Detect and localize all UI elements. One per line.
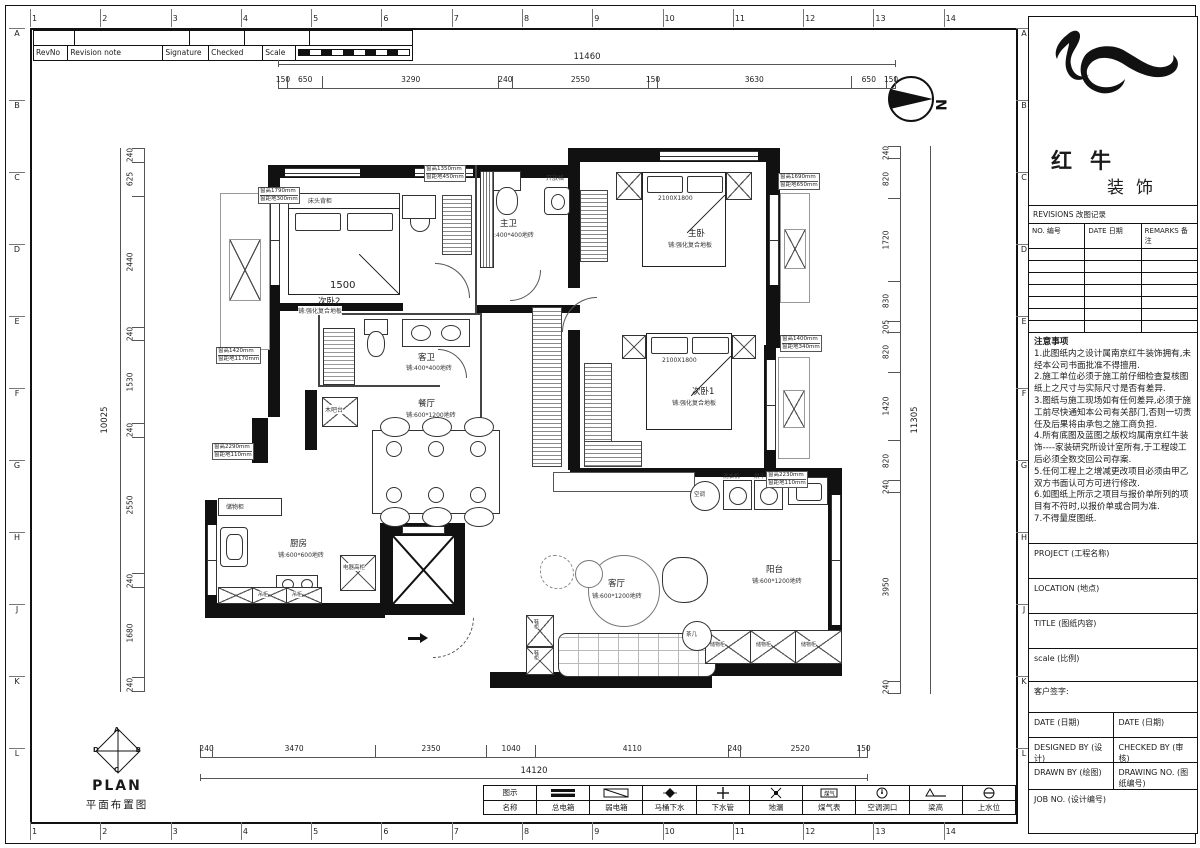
dimension-segment: 625 (132, 162, 144, 196)
grid-label: 1 (30, 9, 100, 27)
grid-label: 12 (803, 9, 873, 27)
dimension-segment: 650 (287, 76, 322, 88)
project-field: PROJECT (工程名称) (1029, 544, 1197, 579)
window-tag: 窗高1690mm窗距地650mm (778, 173, 820, 190)
entry-arrow-icon (408, 633, 428, 643)
floor-label-masterbath: 铺:400*400地砖 (488, 230, 534, 239)
window-tag: 窗高1790mm窗距地300mm (258, 187, 300, 204)
dimension-segment: 4110 (535, 745, 728, 757)
diamond-letter: A (114, 726, 119, 734)
revisions-empty-row (1029, 321, 1197, 332)
diamond-letter: C (114, 766, 119, 774)
appliance-cabinet (340, 555, 376, 591)
window-tag: 窗高2230mm窗距地110mm (766, 471, 808, 488)
grid-label: G (9, 460, 25, 532)
partition (318, 313, 320, 387)
grid-label: 13 (873, 822, 943, 840)
grid-label: E (9, 316, 25, 388)
grid-label: 6 (381, 822, 451, 840)
grid-label: 14 (944, 9, 1014, 27)
diamond-letter: B (136, 746, 141, 754)
dimension-segment: 205 (888, 321, 900, 332)
wood-bar-label: 木吧台 (325, 405, 343, 414)
revisions-empty-row (1029, 261, 1197, 273)
elevator-car (392, 535, 455, 605)
door-arc (435, 263, 470, 298)
grid-label: C (9, 172, 25, 244)
tea-table-label: 茶几 (686, 630, 697, 638)
place-setting (428, 487, 444, 503)
revisions-empty-row (1029, 285, 1197, 297)
place-setting (428, 441, 444, 457)
grid-label: 2 (100, 9, 170, 27)
legend-label: 煤气表 (803, 801, 855, 815)
wall (568, 330, 580, 470)
elevator-x (393, 536, 454, 604)
orientation-diamond: A D B C (95, 728, 139, 772)
dim-chain-right: 240820172083020582014208202403950240 (888, 146, 901, 694)
room-label-dining: 餐厅 (418, 397, 435, 409)
dim-chain-left: 2406252440240153024025502401680240 (132, 148, 145, 692)
place-setting (470, 441, 486, 457)
grid-label: 7 (452, 9, 522, 27)
armchair (662, 557, 708, 603)
date-right-field: DATE (日期) (1114, 713, 1198, 737)
grid-label: K (9, 676, 25, 748)
nightstand (622, 335, 646, 359)
date-left-field: DATE (日期) (1029, 713, 1114, 737)
dimension-segment: 820 (888, 440, 900, 480)
svg-text:煤气: 煤气 (824, 789, 835, 797)
grid-columns-bottom: 1234567891011121314 (30, 822, 1014, 840)
legend-name-header: 名称 (484, 801, 536, 815)
note-item: 1.此图纸内之设计属南京红牛装饰拥有,未经本公司书面批准不得擅用. (1034, 349, 1192, 373)
plan-subtitle: 平面布置图 (72, 797, 162, 812)
dimension-segment: 1530 (132, 340, 144, 422)
wall (305, 390, 317, 450)
legend-label: 总电箱 (537, 801, 589, 815)
bathroom-sink (544, 187, 570, 215)
water-supply-icon (983, 787, 995, 799)
dimension-segment: 650 (851, 76, 886, 88)
shoe-cabinet-label: 鞋柜 (533, 650, 540, 660)
window (831, 495, 841, 625)
washer (723, 480, 752, 510)
grid-label: 5 (311, 9, 381, 27)
grid-label: J (9, 604, 25, 676)
window (766, 360, 776, 450)
dimension-segment: 240 (132, 148, 144, 162)
dimension-segment: 830 (888, 281, 900, 321)
grid-label: 13 (873, 9, 943, 27)
job-no-field: JOB NO. (设计编号) (1029, 790, 1197, 822)
location-field: LOCATION (地点) (1029, 579, 1197, 614)
legend-label: 上水位 (963, 801, 1015, 815)
kitchen-sink (220, 527, 248, 567)
chair (464, 507, 494, 527)
dimension-segment: 3630 (657, 76, 851, 88)
dim-total-right: 11305 (918, 146, 931, 694)
dimension-segment: 1420 (888, 372, 900, 440)
wardrobe (580, 190, 608, 262)
title-field: TITLE (图纸内容) (1029, 614, 1197, 649)
grid-label: 1 (30, 822, 100, 840)
note-item: 7.不得量度图纸. (1034, 514, 1192, 526)
window (285, 168, 360, 177)
grid-label: 10 (663, 822, 733, 840)
dim-chain-bottom: 24034702350104041102402520150 (200, 745, 868, 758)
brand-block: 红牛 装饰 (1029, 17, 1197, 206)
grid-label: F (9, 388, 25, 460)
window (660, 151, 758, 161)
dimension-segment: 1040 (486, 745, 536, 757)
partition (320, 385, 440, 387)
grid-label: D (9, 244, 25, 316)
shower (323, 328, 355, 385)
dimension-segment: 240 (498, 76, 512, 88)
floor-drain-icon (770, 787, 782, 799)
note-item: 3.图纸与施工现场如有任何差异,必须于施工前尽快通知本公司有关部门,否则一切责任… (1034, 396, 1192, 431)
toilet-bowl (367, 331, 385, 357)
window-tag: 窗高1400mm窗距地340mm (780, 335, 822, 352)
grid-label: 7 (452, 822, 522, 840)
dim-chain-top: 150650329024025501503630650150 (278, 76, 896, 89)
grid-label: 8 (522, 9, 592, 27)
plan-title: PLAN (72, 778, 162, 794)
grid-label: 11 (733, 822, 803, 840)
shoe-cabinet-label: 鞋柜 (533, 619, 540, 629)
bed-size-bedroom1: 2100X1800 (662, 357, 697, 364)
grid-label: 5 (311, 822, 381, 840)
room-label-masterbath: 主卫 (500, 217, 517, 229)
bay-window (780, 193, 810, 303)
revisions-empty-row (1029, 297, 1197, 309)
wall (205, 603, 385, 618)
room-label-bedroom1: 次卧1 (692, 385, 714, 397)
designed-by-field: DESIGNED BY (设计) (1029, 738, 1114, 762)
grid-label: 9 (592, 822, 662, 840)
side-table (575, 560, 603, 588)
chair (464, 417, 494, 437)
desk (402, 195, 436, 219)
dimension-segment: 240 (132, 677, 144, 692)
brand-name-line1: 红牛 (1051, 145, 1129, 175)
wardrobe (584, 363, 612, 445)
place-setting (386, 487, 402, 503)
floor-plan: 床头背柜 次卧2 铺:强化复合地板 1500 开放格 主卫 铺:400*400地… (180, 135, 920, 710)
revisions-col-header: NO. 编号 (1029, 224, 1085, 248)
revisions-empty-row (1029, 249, 1197, 261)
bed-size-master: 2100X1800 (658, 195, 693, 202)
nightstand (732, 335, 756, 359)
plan-title-block: A D B C PLAN 平面布置图 (72, 728, 162, 812)
weak-current-box-icon (603, 788, 629, 798)
storage-cabinet-label: 储物柜 (226, 502, 244, 511)
diamond-letter: D (93, 746, 99, 754)
legend-label: 地漏 (750, 801, 802, 815)
grid-label: H (9, 532, 25, 604)
revisions-header: REVISIONS 改图记录 (1029, 206, 1197, 224)
dimension-segment: 820 (888, 158, 900, 198)
washer-label: 洗衣机 (723, 472, 740, 480)
entry-door-arc (433, 617, 474, 658)
wall (475, 305, 580, 313)
room-label-balcony: 阳台 (766, 563, 783, 575)
chair (380, 507, 410, 527)
floor-label-kitchen: 铺:600*600地砖 (278, 550, 324, 559)
revisions-empty-row (1029, 309, 1197, 321)
dimension-segment: 240 (132, 327, 144, 341)
legend-label: 下水管 (697, 801, 749, 815)
room-label-guestbath: 客卫 (418, 351, 435, 363)
bed-master (642, 172, 726, 267)
ac-platform (553, 472, 695, 492)
bed-bedroom1 (646, 333, 732, 430)
grid-label: 12 (803, 822, 873, 840)
dimension-segment: 2550 (132, 437, 144, 574)
grid-label: 3 (171, 9, 241, 27)
grid-columns-top: 1234567891011121314 (30, 9, 1014, 27)
note-item: 5.任何工程上之增减更改项目必须由甲乙双方书面认可方可进行修改. (1034, 467, 1192, 491)
shoe-cabinet (526, 647, 554, 675)
grid-rows-left: ABCDEFGHJKL (9, 28, 25, 820)
grid-label: 10 (663, 9, 733, 27)
dimension-segment: 240 (888, 681, 900, 694)
dimension-segment: 3470 (212, 745, 375, 757)
legend-icon-header: 图示 (484, 786, 536, 801)
dim-total-bottom: 14120 (200, 766, 868, 779)
scale-field: scale (比例) (1029, 649, 1197, 682)
window-tag: 窗高2290mm窗距地110mm (212, 443, 254, 460)
signature-header: Signature (163, 46, 209, 61)
nightstand (616, 172, 642, 200)
dimension-segment: 240 (888, 146, 900, 158)
revisions-col-header: DATE 日期 (1085, 224, 1141, 248)
grid-label: 9 (592, 9, 662, 27)
grid-label: 11 (733, 9, 803, 27)
dimension-segment: 150 (648, 76, 657, 88)
chair (380, 417, 410, 437)
dimension-segment: 150 (859, 745, 868, 757)
bedside-cabinet-label: 床头背柜 (308, 196, 332, 205)
place-setting (386, 441, 402, 457)
title-panel: 红牛 装饰 REVISIONS 改图记录 NO. 编号DATE 日期REMARK… (1028, 16, 1198, 834)
revisions-empty-row (1029, 273, 1197, 285)
dimension-segment: 240 (728, 745, 740, 757)
legend-bar: 图示 名称 总电箱 弱电箱 马桶下水 下水管 地漏 煤气煤气表 空调洞口 梁高 … (483, 785, 1016, 815)
grid-label: 4 (241, 822, 311, 840)
storage-cabinet-label: 储物柜 (710, 641, 725, 648)
legend-label: 弱电箱 (590, 801, 642, 815)
checked-header: Checked (209, 46, 263, 61)
hall-cabinet (532, 307, 562, 467)
window (270, 195, 280, 285)
dimension-segment: 2350 (375, 745, 486, 757)
place-setting (470, 487, 486, 503)
toilet-bowl (496, 187, 518, 215)
note-item: 4.所有底图及蓝图之版权均属南京红牛装饰----家装研究所设计室所有,于工程竣工… (1034, 431, 1192, 466)
dimension-segment: 150 (886, 76, 896, 88)
revno-header: RevNo (34, 46, 68, 61)
gas-meter-icon: 煤气 (820, 788, 838, 798)
room-label-kitchen: 厨房 (290, 537, 307, 549)
open-shelf-label: 开放格 (546, 173, 564, 182)
floor-label-master: 铺:强化复合地板 (668, 240, 712, 249)
room-label-master: 主卧 (688, 227, 705, 239)
legend-label: 马桶下水 (643, 801, 695, 815)
grid-label: A (9, 28, 25, 100)
desk-chair (410, 219, 430, 232)
notes-block: 注意事项 1.此图纸内之设计属南京红牛装饰拥有,未经本公司书面批准不得擅用.2.… (1029, 333, 1197, 544)
dim-1500: 1500 (330, 280, 355, 291)
dimension-segment: 1720 (888, 198, 900, 281)
notes-title: 注意事项 (1034, 337, 1192, 349)
toilet-drain-icon (663, 787, 677, 799)
dimension-segment: 1680 (132, 587, 144, 677)
grid-label: L (9, 748, 25, 820)
drawn-by-field: DRAWN BY (绘图) (1029, 763, 1114, 789)
grid-label: 2 (100, 822, 170, 840)
grid-label: B (9, 100, 25, 172)
partition (320, 313, 482, 315)
wardrobe (442, 195, 472, 255)
grid-label: 6 (381, 9, 451, 27)
dimension-segment: 3950 (888, 492, 900, 680)
window-tag: 窗高1420mm窗距地1170mm (216, 347, 261, 364)
floor-label-balcony: 铺:600*1200地砖 (752, 576, 802, 585)
ac-label: 空调 (694, 490, 705, 498)
dim-total-top: 11460 (278, 52, 896, 65)
sewer-pipe-icon (717, 787, 729, 799)
dim-total-left: 10025 (108, 148, 121, 692)
revisions-table: REVISIONS 改图记录 NO. 编号DATE 日期REMARKS 备注 (1029, 206, 1197, 333)
elevator-door (402, 526, 445, 534)
bull-logo-icon (1029, 17, 1195, 137)
dimension-segment: 240 (200, 745, 212, 757)
grid-label: 14 (944, 822, 1014, 840)
beam-height-icon (925, 788, 947, 798)
plant (540, 555, 574, 589)
hanging-cabinet-label: 吊柜 (292, 591, 302, 598)
storage-cabinet-label: 储物柜 (756, 641, 771, 648)
bay-window (220, 193, 270, 350)
brand-name-line2: 装饰 (1107, 173, 1165, 198)
room-label-living: 客厅 (608, 577, 625, 589)
door-arc (562, 297, 597, 332)
dimension-segment: 2520 (740, 745, 859, 757)
main-power-box-icon (550, 788, 576, 798)
floor-label-bedroom1: 铺:强化复合地板 (672, 398, 716, 407)
ac-hole-icon (876, 787, 888, 799)
bay-window (778, 357, 810, 459)
chair (422, 507, 452, 527)
dimension-segment: 2550 (512, 76, 648, 88)
dimension-segment: 820 (888, 332, 900, 372)
window (769, 195, 779, 285)
mirror-cabinet (480, 171, 494, 268)
client-signature-field[interactable]: 客户签字: (1029, 682, 1197, 713)
floor-label-living: 铺:600*1200地砖 (592, 591, 642, 600)
floor-label-bedroom2: 铺:强化复合地板 (298, 306, 342, 315)
wall (252, 418, 268, 463)
storage-cabinet-label: 储物柜 (801, 641, 816, 648)
note-item: 2.施工单位必须于施工前仔细检查复核图纸上之尺寸与实际尺寸是否有差异. (1034, 372, 1192, 396)
nightstand (726, 172, 752, 200)
north-label: N (932, 99, 948, 111)
dimension-segment: 150 (278, 76, 287, 88)
door-arc (438, 349, 467, 378)
wardrobe (584, 441, 642, 467)
partition (475, 165, 477, 313)
revision-note-header: Revision note (68, 46, 163, 61)
base-cabinet (218, 587, 254, 604)
dimension-segment: 3290 (322, 76, 498, 88)
legend-label: 梁高 (910, 801, 962, 815)
grid-label: 3 (171, 822, 241, 840)
door-arc (510, 270, 541, 301)
grid-label: 8 (522, 822, 592, 840)
grid-label: 4 (241, 9, 311, 27)
hanging-cabinet-label: 吊柜 (258, 591, 268, 598)
revisions-col-header: REMARKS 备注 (1142, 224, 1197, 248)
wall (710, 662, 842, 676)
drawing-sheet: 1234567891011121314 1234567891011121314 … (0, 0, 1200, 848)
window-tag: 窗高1350mm窗距地450mm (424, 165, 466, 182)
shoe-cabinet (526, 615, 554, 647)
wall (568, 148, 580, 288)
dimension-segment: 240 (132, 573, 144, 587)
dimension-segment: 240 (132, 423, 144, 437)
drawing-no-field: DRAWING NO. (图纸编号) (1114, 763, 1198, 789)
legend-label: 空调洞口 (856, 801, 908, 815)
chair (422, 417, 452, 437)
appliance-cabinet-label: 电器高柜 (343, 563, 365, 571)
note-item: 6.如图纸上所示之项目与报价单所列的项目有不符时,以报价单或合同为准. (1034, 490, 1192, 514)
dimension-segment: 240 (888, 480, 900, 492)
vanity (402, 319, 470, 347)
window (207, 525, 217, 595)
dimension-segment: 2440 (132, 196, 144, 327)
checked-by-field: CHECKED BY (审核) (1114, 738, 1198, 762)
